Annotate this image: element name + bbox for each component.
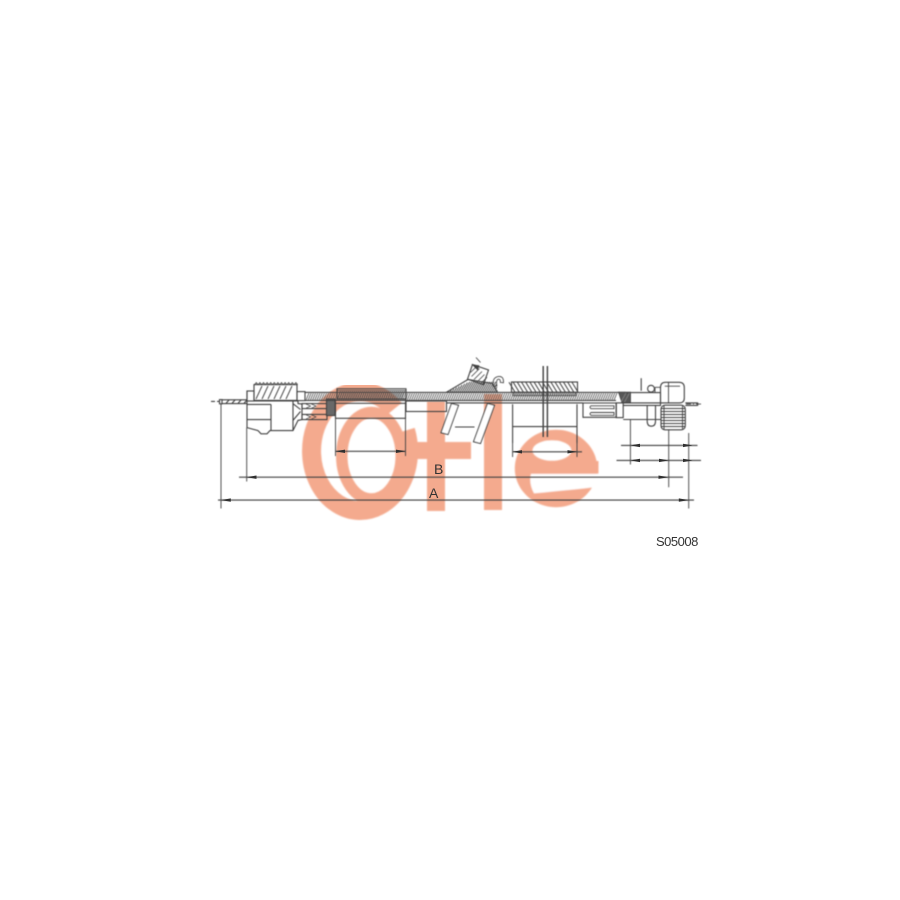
svg-text:A: A [429, 485, 439, 501]
svg-text:B: B [434, 461, 443, 477]
svg-text:S05008: S05008 [656, 534, 698, 549]
